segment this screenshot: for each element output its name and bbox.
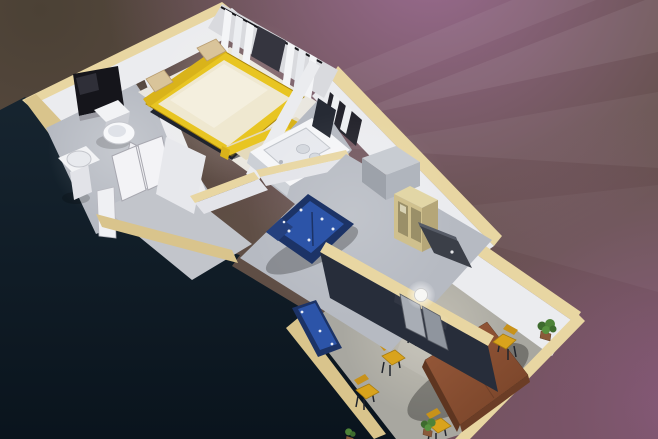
plant-foliage [550, 326, 557, 333]
cushion-split [312, 212, 313, 246]
toilet-bowl-inner [108, 125, 126, 137]
plant-foliage [542, 326, 550, 334]
media-unit-glint [450, 250, 453, 253]
plant-foliage [350, 431, 356, 437]
sink-basin [67, 151, 91, 167]
render-canvas [0, 0, 658, 439]
open-door-leaf [97, 187, 116, 238]
plant-foliage [425, 424, 432, 431]
wall-sphere-lamp [415, 289, 428, 302]
